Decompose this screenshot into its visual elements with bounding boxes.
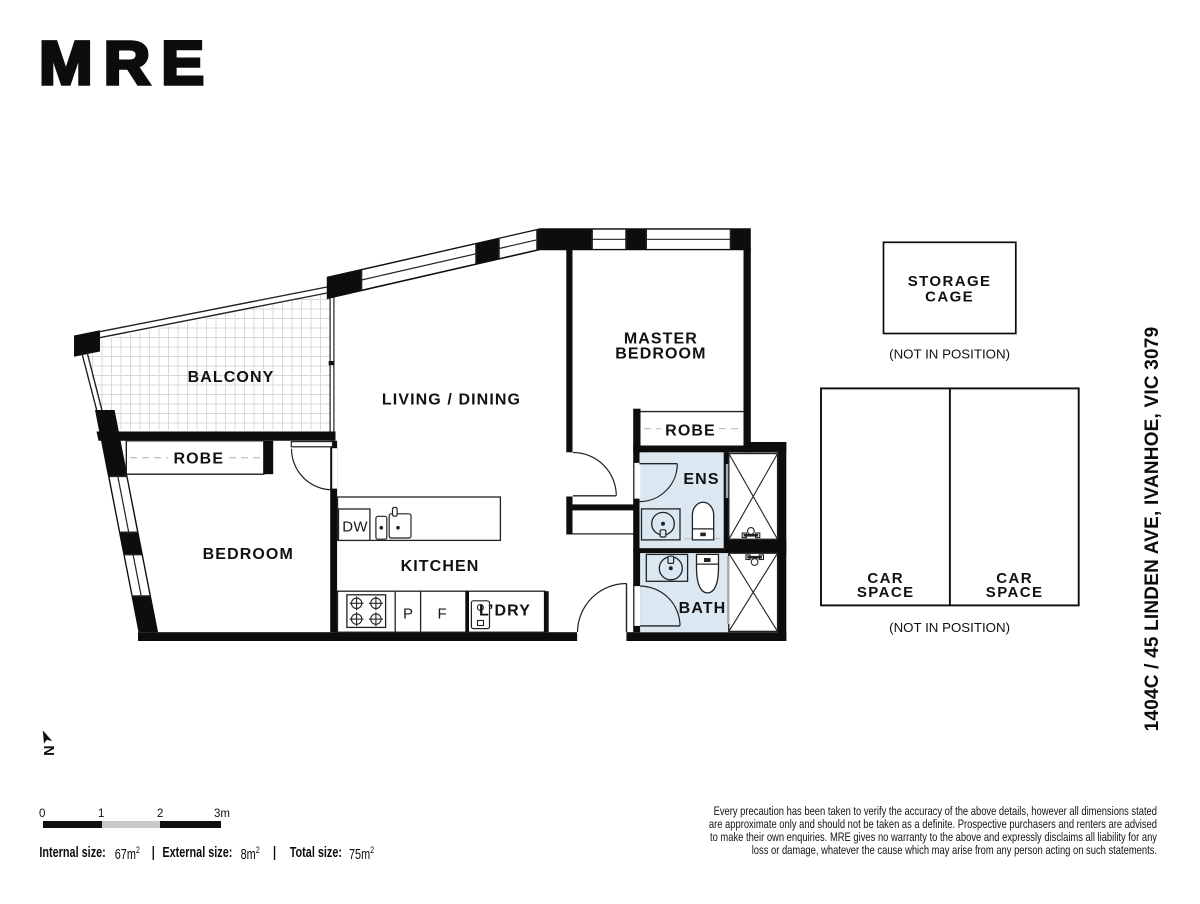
svg-text:P: P <box>403 606 413 623</box>
svg-text:N: N <box>40 745 56 755</box>
svg-text:BATH: BATH <box>679 600 727 617</box>
svg-text:LIVING / DINING: LIVING / DINING <box>382 392 521 409</box>
svg-text:ENS: ENS <box>683 471 719 488</box>
svg-text:(NOT IN POSITION): (NOT IN POSITION) <box>889 347 1010 362</box>
svg-text:ROBE: ROBE <box>173 451 224 468</box>
svg-text:SPACE: SPACE <box>857 584 915 601</box>
svg-text:CAGE: CAGE <box>925 289 974 306</box>
svg-text:SPACE: SPACE <box>986 584 1044 601</box>
svg-text:L’DRY: L’DRY <box>479 603 531 620</box>
svg-text:DW: DW <box>342 519 368 536</box>
svg-text:KITCHEN: KITCHEN <box>401 558 480 575</box>
svg-text:ROBE: ROBE <box>665 423 716 440</box>
svg-text:BALCONY: BALCONY <box>188 369 275 386</box>
svg-text:BEDROOM: BEDROOM <box>615 345 706 362</box>
svg-text:F: F <box>438 606 447 623</box>
svg-text:(NOT IN POSITION): (NOT IN POSITION) <box>889 620 1010 635</box>
svg-text:STORAGE: STORAGE <box>908 273 992 290</box>
svg-text:BEDROOM: BEDROOM <box>203 546 294 563</box>
